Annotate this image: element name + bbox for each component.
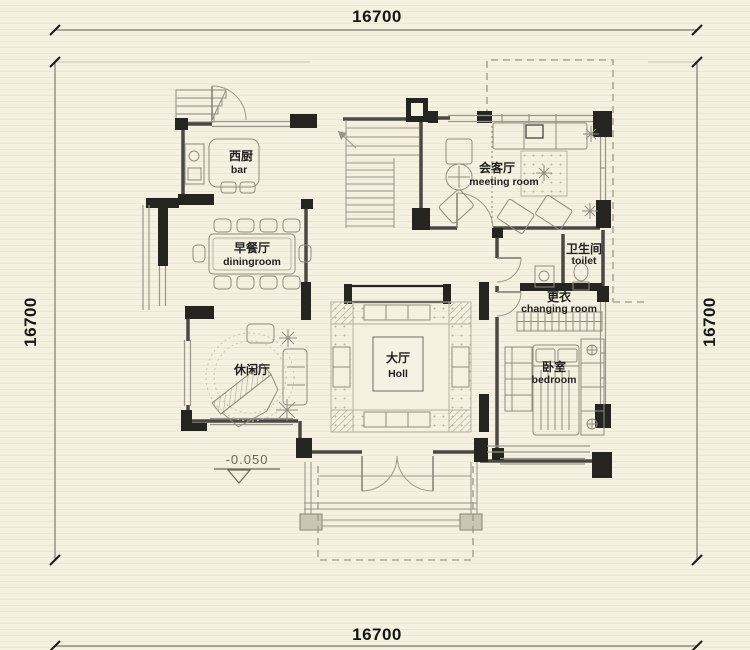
hall-sofa-north (364, 305, 430, 320)
room-label-toilet-en: toilet (571, 255, 597, 267)
leisure-sofa (283, 349, 307, 405)
bed-icon (533, 345, 579, 435)
room-label-leisure-cn: 休闲厅 (233, 362, 270, 377)
porch-column (300, 514, 322, 530)
room-label-changing-en: changing room (521, 303, 597, 315)
room-label-dining-en: diningroom (223, 256, 281, 268)
floor-plan-drawing: 16700 16700 16700 16700 (0, 0, 750, 650)
room-label-changing-cn: 更衣 (547, 289, 571, 304)
entry-porch (300, 462, 482, 560)
bedroom-furniture (505, 339, 604, 435)
room-label-meeting-en: meeting room (469, 176, 538, 188)
dimension-left: 16700 (21, 297, 40, 347)
room-label-bar-en: bar (231, 164, 247, 176)
elevation-marker (214, 469, 280, 483)
staircase (338, 120, 419, 228)
meeting-armchair (446, 139, 472, 164)
column-hollow-center (411, 103, 423, 116)
dimension-right: 16700 (700, 297, 719, 347)
room-label-hall-en: Holl (388, 368, 408, 380)
plant-icon (276, 399, 298, 421)
plant-icon (582, 203, 598, 219)
bar-furniture (185, 139, 259, 193)
hall-console (347, 286, 447, 302)
porch-column (460, 514, 482, 530)
bar-counter (209, 139, 259, 187)
room-label-bedroom-cn: 卧室 (542, 359, 566, 374)
room-label-toilet-cn: 卫生间 (566, 241, 602, 256)
room-label-bedroom-en: bedroom (532, 374, 577, 386)
elevation-label: -0.050 (226, 452, 269, 467)
floor-plan-sheet: 16700 16700 16700 16700 (0, 0, 750, 650)
room-label-hall-cn: 大厅 (386, 350, 410, 365)
dimension-top: 16700 (352, 7, 402, 26)
hall-sofa-south (364, 412, 430, 427)
plant-icon (279, 329, 297, 347)
room-label-bar-cn: 西厨 (229, 148, 253, 163)
dimension-bottom: 16700 (352, 625, 402, 644)
meeting-sofa (493, 123, 587, 149)
side-entry-door (212, 86, 246, 120)
room-label-meeting-cn: 会客厅 (479, 160, 515, 175)
leisure-chair (247, 324, 274, 343)
side-entry-steps (176, 90, 226, 122)
room-label-dining-cn: 早餐厅 (234, 240, 270, 255)
porch-dashed-outline (318, 466, 473, 560)
